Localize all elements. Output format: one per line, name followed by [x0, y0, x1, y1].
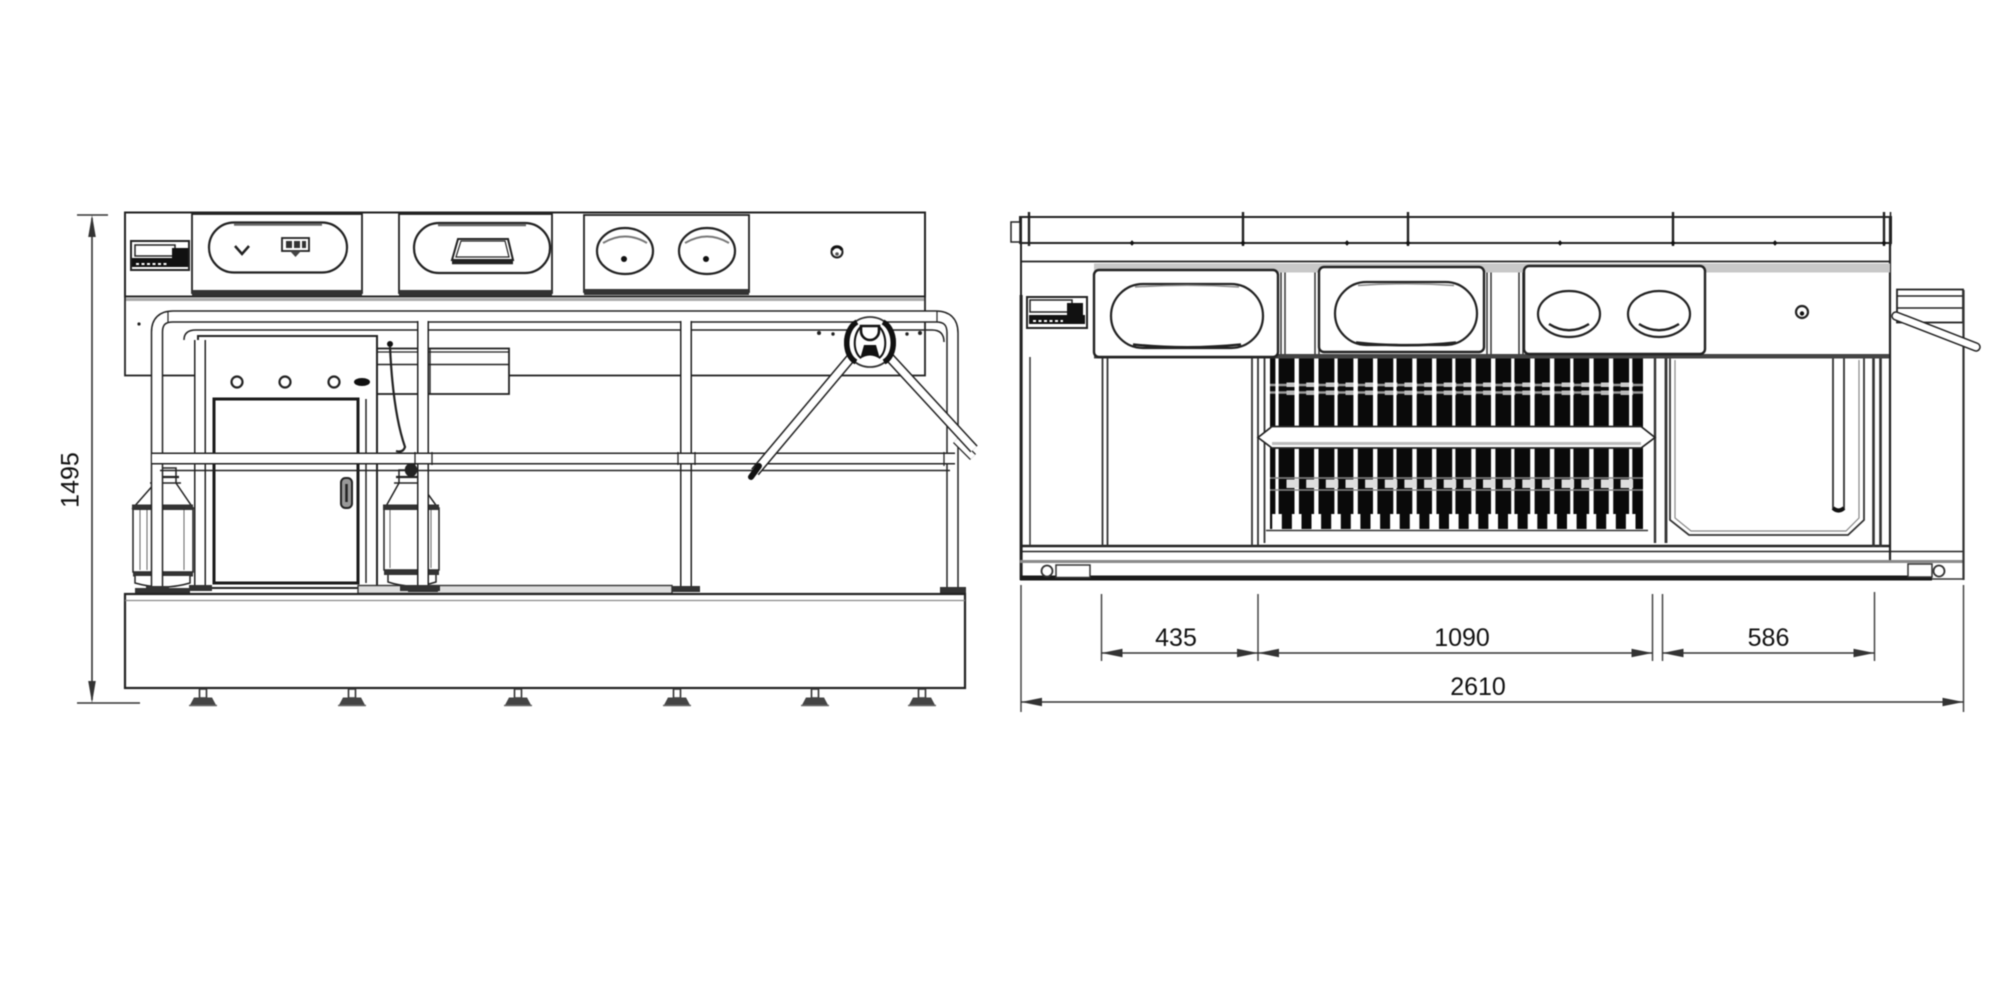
svg-text:2610: 2610	[1450, 673, 1506, 701]
svg-text:586: 586	[1748, 624, 1790, 652]
svg-text:1090: 1090	[1434, 624, 1490, 652]
svg-text:435: 435	[1155, 624, 1197, 652]
svg-text:1495: 1495	[57, 452, 85, 508]
